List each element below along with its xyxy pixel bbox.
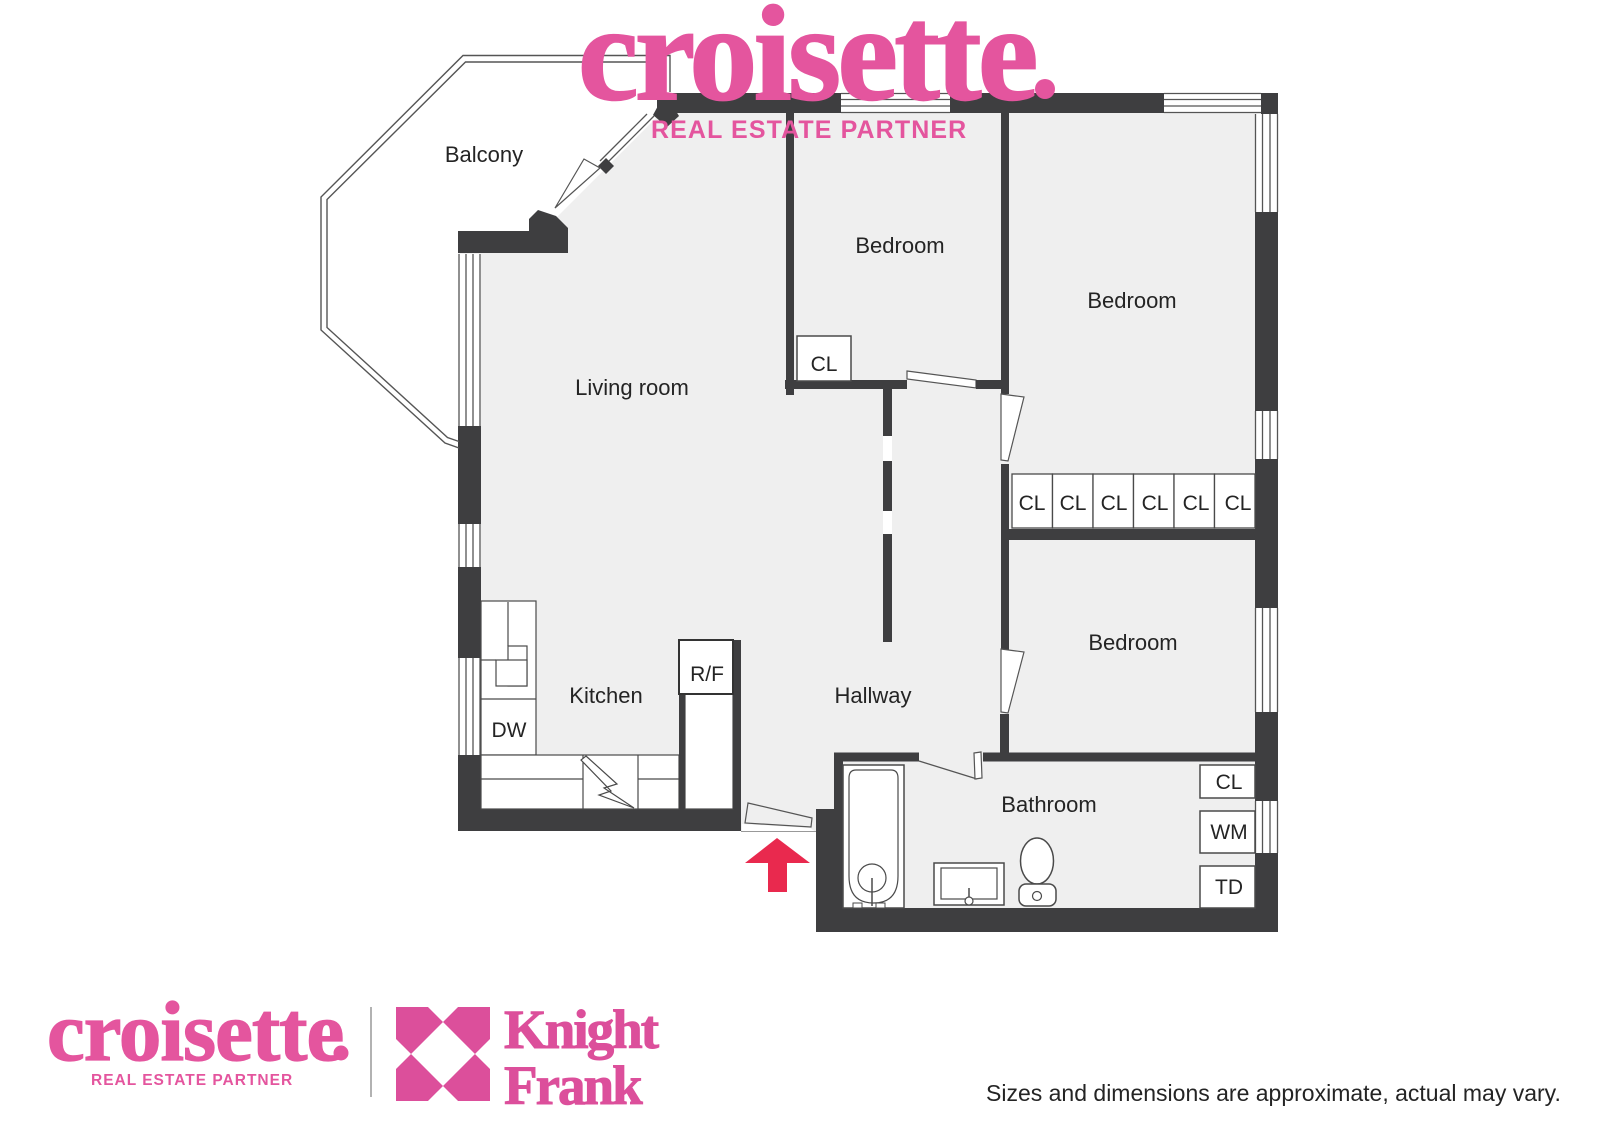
svg-text:REAL ESTATE PARTNER: REAL ESTATE PARTNER — [651, 116, 967, 144]
svg-text:Kitchen: Kitchen — [569, 683, 642, 708]
svg-text:Bedroom: Bedroom — [1088, 630, 1177, 655]
svg-text:CL: CL — [811, 353, 838, 376]
svg-text:CL: CL — [1183, 492, 1210, 515]
svg-text:Bathroom: Bathroom — [1001, 792, 1096, 817]
svg-text:CL: CL — [1060, 492, 1087, 515]
svg-text:WM: WM — [1210, 821, 1247, 844]
svg-text:Hallway: Hallway — [834, 683, 911, 708]
svg-text:Living room: Living room — [575, 375, 689, 400]
svg-text:Sizes and dimensions are appro: Sizes and dimensions are approximate, ac… — [986, 1080, 1561, 1106]
svg-text:Knight: Knight — [504, 999, 660, 1060]
svg-text:TD: TD — [1215, 876, 1243, 899]
svg-text:CL: CL — [1019, 492, 1046, 515]
svg-text:CL: CL — [1225, 492, 1252, 515]
svg-text:croisette: croisette — [47, 985, 343, 1079]
svg-text:Frank: Frank — [504, 1055, 643, 1116]
svg-text:Balcony: Balcony — [445, 142, 523, 167]
svg-text:CL: CL — [1216, 771, 1243, 794]
svg-text:REAL ESTATE PARTNER: REAL ESTATE PARTNER — [91, 1072, 293, 1089]
svg-text:Bedroom: Bedroom — [855, 233, 944, 258]
svg-text:CL: CL — [1142, 492, 1169, 515]
svg-text:croisette: croisette — [578, 0, 1035, 129]
svg-text:Bedroom: Bedroom — [1087, 288, 1176, 313]
svg-text:DW: DW — [492, 719, 527, 742]
svg-text:CL: CL — [1101, 492, 1128, 515]
svg-text:R/F: R/F — [690, 663, 724, 686]
